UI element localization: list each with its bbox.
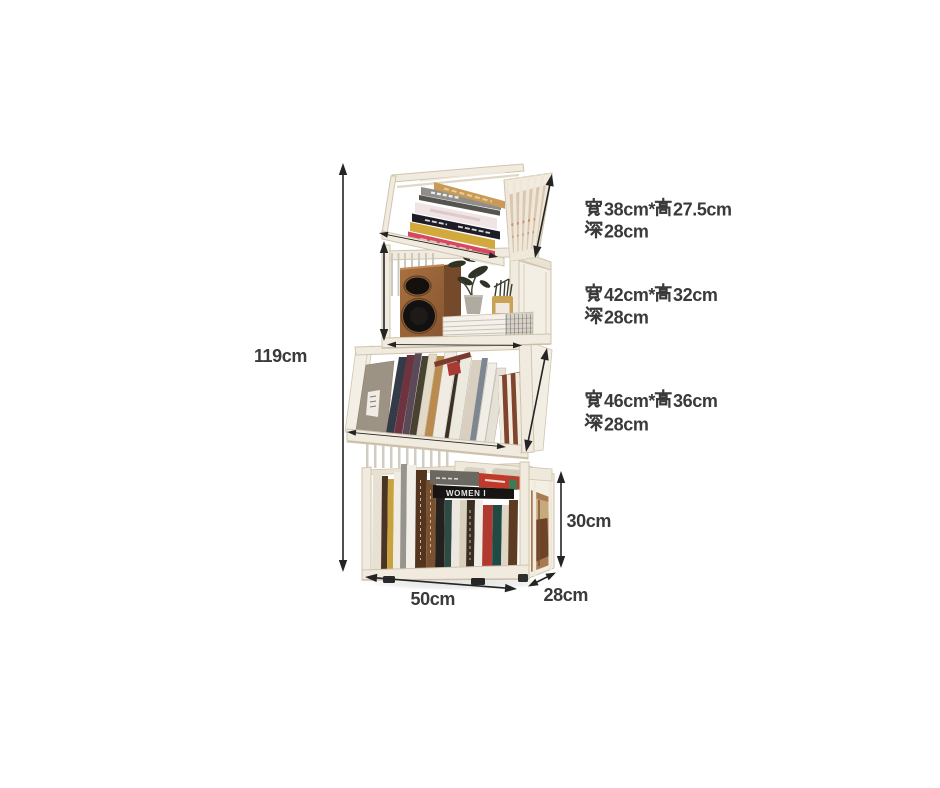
- svg-text:28cm: 28cm: [544, 585, 588, 605]
- svg-text:32cm: 32cm: [673, 285, 717, 305]
- svg-text:42cm*: 42cm*: [604, 285, 655, 305]
- svg-text:50cm: 50cm: [411, 589, 455, 609]
- svg-text:46cm*: 46cm*: [604, 391, 655, 411]
- svg-text:30cm: 30cm: [567, 511, 611, 531]
- svg-text:28cm: 28cm: [604, 222, 648, 242]
- svg-text:27.5cm: 27.5cm: [673, 200, 732, 220]
- svg-text:119cm: 119cm: [254, 346, 307, 366]
- svg-text:38cm*: 38cm*: [604, 200, 655, 220]
- svg-text:28cm: 28cm: [604, 415, 648, 435]
- svg-text:28cm: 28cm: [604, 308, 648, 328]
- svg-text:36cm: 36cm: [673, 391, 717, 411]
- svg-text:WOMEN I: WOMEN I: [446, 489, 486, 498]
